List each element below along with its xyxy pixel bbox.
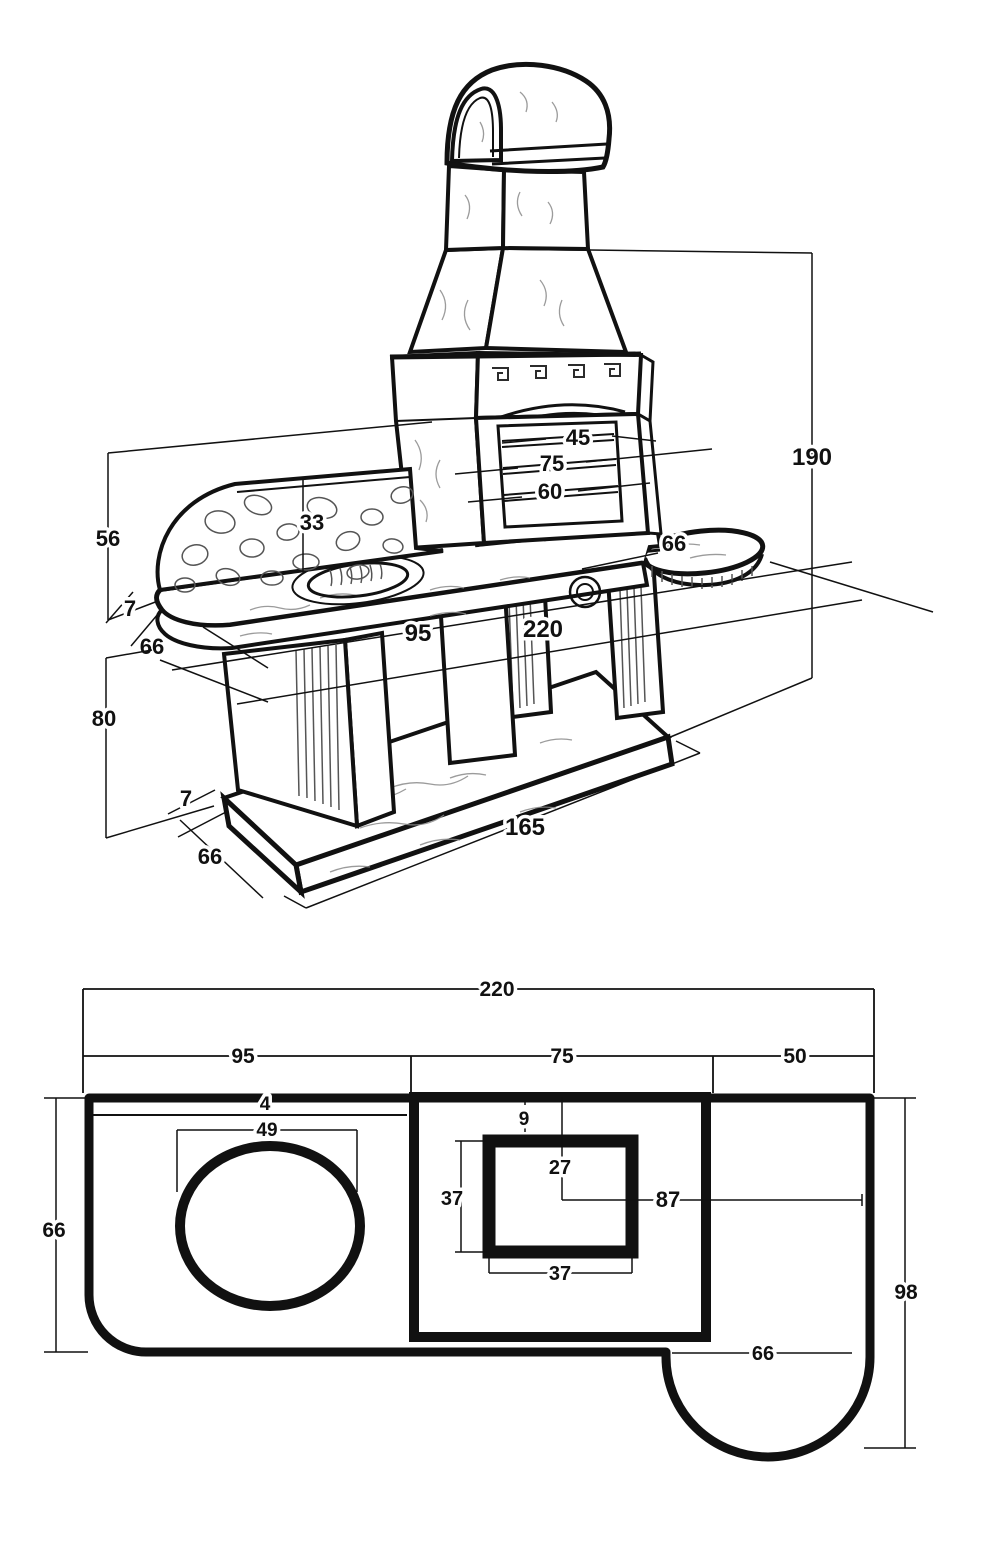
dim-backsplash-height: 56 [96,526,120,551]
plan-top-dimensions: 220 95 75 50 [83,978,874,1093]
plan-dim-rear-gap: 9 [519,1109,530,1130]
plan-dim-firebox-width: 37 [549,1263,571,1285]
plan-dim-side-table-width: 66 [752,1343,774,1365]
plan-dim-rear-strip: 4 [260,1094,271,1115]
plan-dim-right-depth: 98 [894,1281,918,1304]
dim-grill-middle: 75 [540,451,564,476]
plan-dim-sink-diameter: 49 [256,1120,277,1141]
plan-dim-left-section: 95 [231,1045,255,1068]
plan-dim-worktop-depth: 66 [42,1219,65,1242]
plan-dim-total-length: 220 [479,978,514,1001]
dim-grill-lower: 60 [538,479,562,504]
middle-pillar [440,593,515,763]
dim-worktop-thickness: 7 [124,596,136,621]
technical-drawing-page: 56 7 66 80 7 66 165 190 [0,0,988,1564]
plan-dim-center-offset: 27 [549,1157,571,1179]
dim-grill-upper: 45 [566,425,590,450]
dim-total-length: 220 [523,616,563,643]
plan-firebox-outer [414,1097,706,1337]
dim-plinth-thickness: 7 [180,786,192,811]
dim-plinth-length: 165 [505,814,545,841]
dim-plinth-depth: 66 [198,844,222,869]
plan-dim-middle-section: 75 [550,1045,574,1068]
plan-dim-right-section: 50 [783,1045,806,1068]
drawing-canvas: 56 7 66 80 7 66 165 190 [0,0,988,1564]
chimney-cap [447,64,610,171]
dim-total-height: 190 [792,444,832,471]
dim-worktop-length: 95 [405,620,432,647]
plan-view: 220 95 75 50 4 49 66 9 27 37 [42,978,918,1457]
dim-side-table: 66 [662,531,686,556]
plan-dim-firebox-depth: 37 [441,1188,463,1210]
firebox-stack [390,64,661,548]
perspective-view: 56 7 66 80 7 66 165 190 [92,64,933,908]
plan-sink-circle [180,1146,360,1306]
dim-worktop-depth: 66 [140,634,164,659]
dim-understructure-height: 80 [92,706,116,731]
plan-dim-center-to-edge: 87 [656,1187,680,1212]
dim-backsplash-wall: 33 [300,510,324,535]
